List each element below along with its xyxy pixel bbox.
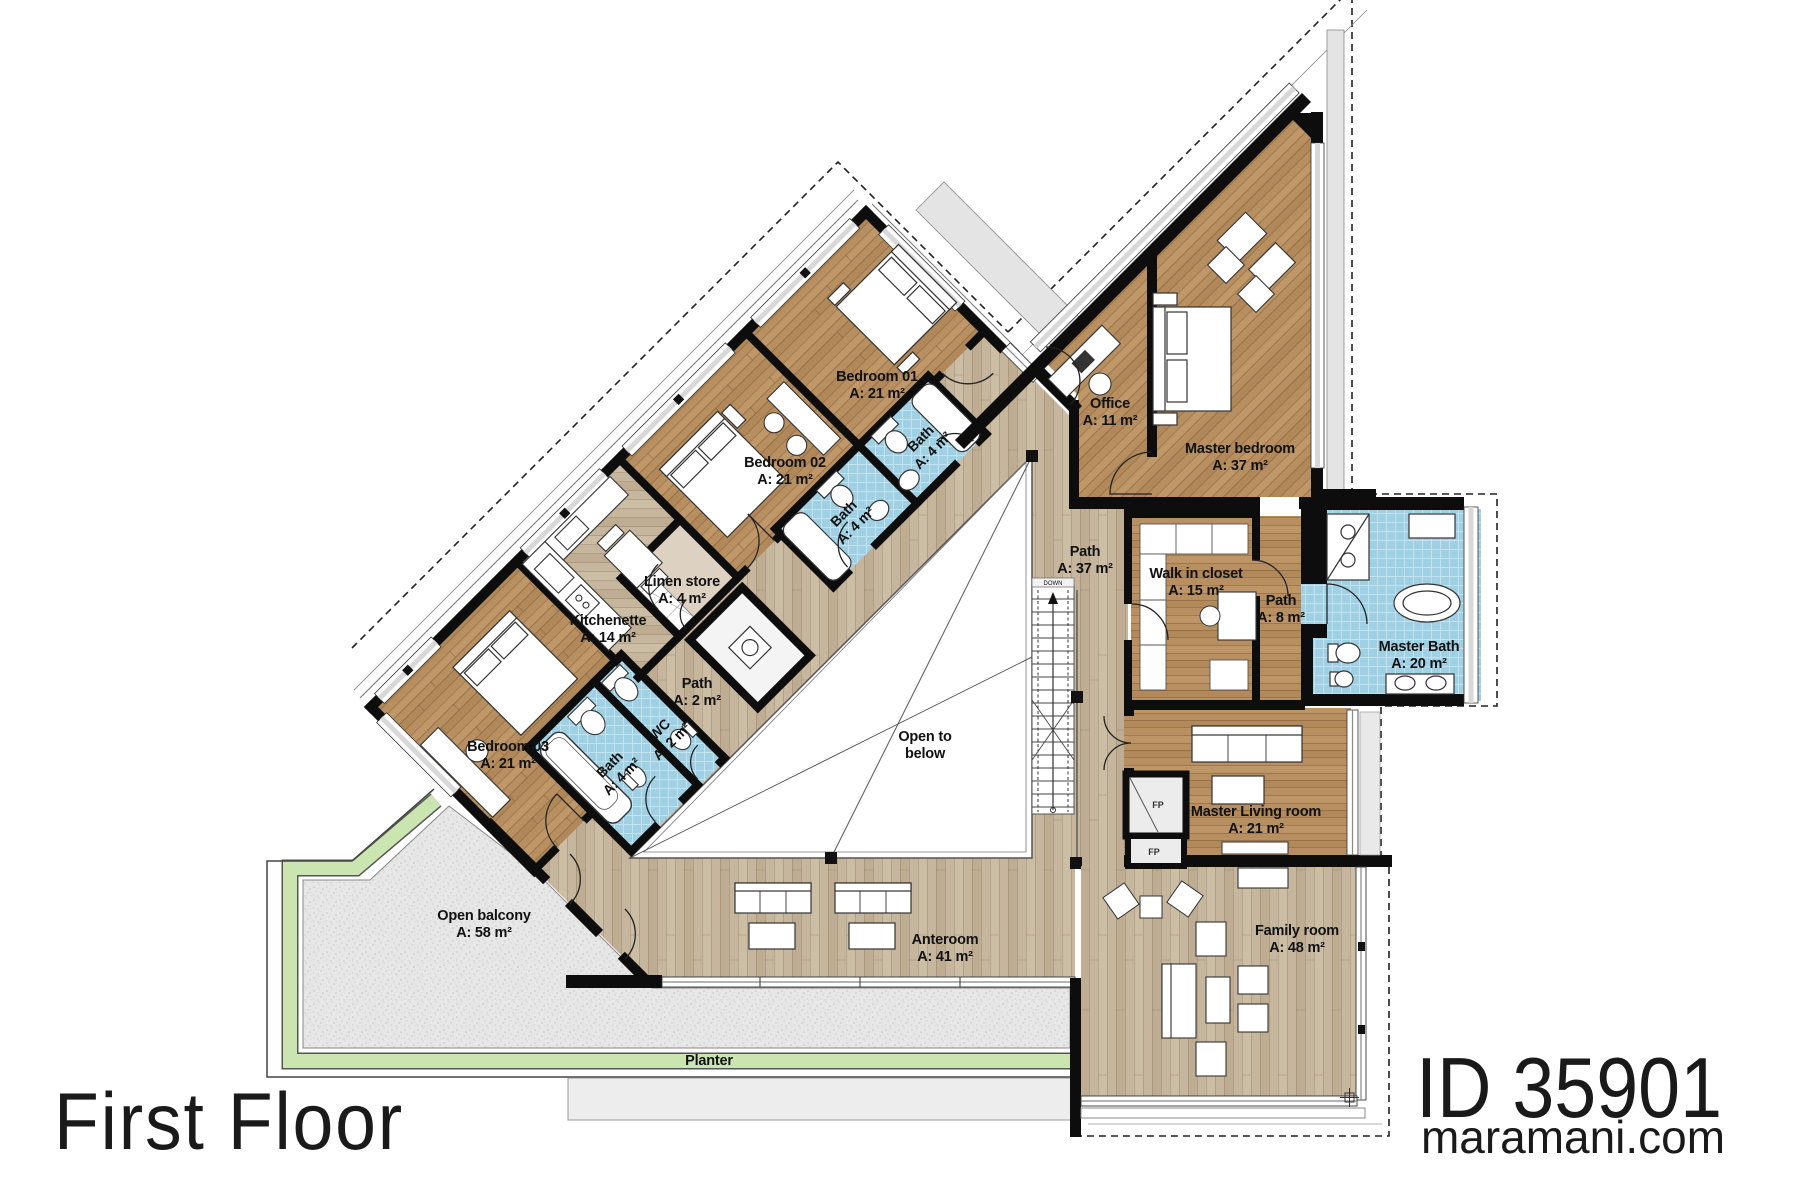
svg-text:A: 21 m²: A: 21 m² (480, 756, 536, 772)
svg-text:A: 15 m²: A: 15 m² (1168, 583, 1224, 599)
svg-text:A: 8 m²: A: 8 m² (1257, 610, 1305, 626)
svg-text:Bedroom 03: Bedroom 03 (467, 739, 549, 755)
svg-text:A: 21 m²: A: 21 m² (757, 472, 813, 488)
svg-text:Linen store: Linen store (644, 574, 720, 590)
svg-text:A: 4 m²: A: 4 m² (658, 591, 706, 607)
svg-text:Anteroom: Anteroom (912, 932, 979, 948)
svg-text:A: 2 m²: A: 2 m² (673, 693, 721, 709)
svg-text:A: 58 m²: A: 58 m² (456, 925, 512, 941)
svg-text:A: 20 m²: A: 20 m² (1391, 656, 1447, 672)
svg-text:DOWN: DOWN (1044, 581, 1063, 587)
svg-text:Family room: Family room (1255, 923, 1339, 939)
svg-text:First Floor: First Floor (54, 1077, 404, 1167)
svg-text:A: 11 m²: A: 11 m² (1083, 413, 1138, 429)
svg-text:Open balcony: Open balcony (437, 908, 531, 924)
svg-text:Master Living room: Master Living room (1191, 804, 1321, 820)
svg-text:A: 21 m²: A: 21 m² (1228, 821, 1284, 837)
svg-text:A: 37 m²: A: 37 m² (1057, 561, 1113, 577)
svg-text:A: 41 m²: A: 41 m² (917, 949, 973, 965)
svg-text:Path: Path (682, 676, 713, 692)
svg-text:Bedroom 02: Bedroom 02 (744, 455, 826, 471)
svg-text:Bedroom 01: Bedroom 01 (836, 369, 918, 385)
svg-text:Path: Path (1266, 593, 1297, 609)
svg-text:A: 37 m²: A: 37 m² (1212, 458, 1268, 474)
svg-text:Open to: Open to (898, 729, 952, 745)
svg-text:Walk in closet: Walk in closet (1149, 566, 1243, 582)
svg-text:Master Bath: Master Bath (1379, 639, 1460, 655)
svg-text:below: below (905, 746, 946, 762)
svg-text:FP: FP (1148, 847, 1160, 857)
svg-text:A: 48 m²: A: 48 m² (1269, 940, 1325, 956)
svg-text:A: 21 m²: A: 21 m² (849, 386, 905, 402)
svg-text:Kitchenette: Kitchenette (570, 613, 647, 629)
svg-text:A: 14 m²: A: 14 m² (580, 630, 636, 646)
svg-text:FP: FP (1152, 800, 1164, 810)
svg-text:Office: Office (1090, 396, 1130, 412)
svg-text:Planter: Planter (685, 1053, 733, 1069)
svg-text:maramani.com: maramani.com (1421, 1111, 1725, 1163)
svg-text:Path: Path (1070, 544, 1101, 560)
svg-text:Master bedroom: Master bedroom (1185, 441, 1295, 457)
